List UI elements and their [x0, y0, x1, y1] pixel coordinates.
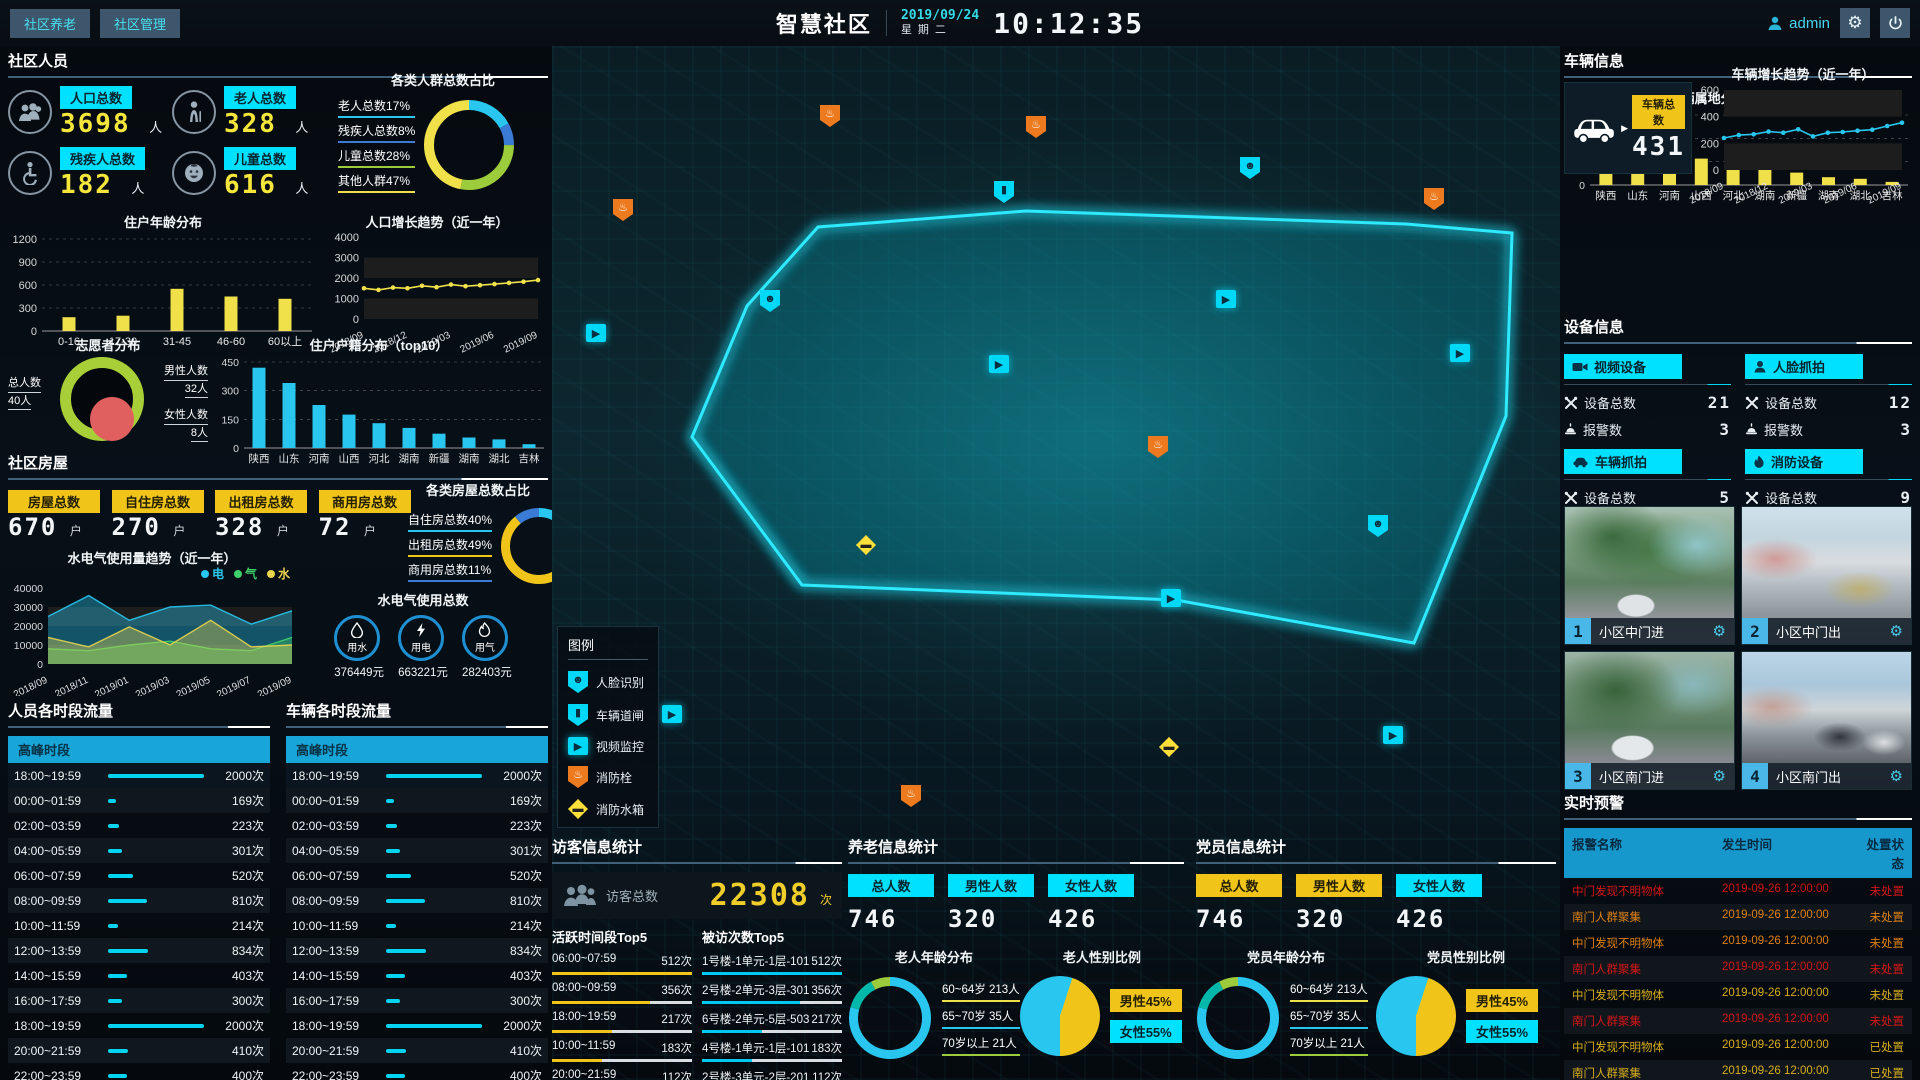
flow-row: 20:00~21:59 410次	[286, 1038, 548, 1063]
svg-text:山东: 山东	[1627, 189, 1648, 202]
flow-row: 22:00~23:59 400次	[286, 1063, 548, 1080]
usage-item: 用水 376449元	[334, 615, 384, 680]
stat-value: 72	[319, 513, 352, 541]
video-monitor-marker[interactable]: ▶	[1216, 290, 1236, 308]
stat-label: 女性人数	[1048, 874, 1134, 897]
population-growth-block: 人口增长趋势（近一年） 010002000300040002018/092018…	[326, 212, 548, 353]
alerts-table-header: 报警名称 发生时间 处置状态	[1564, 828, 1912, 878]
device-name-badge: 视频设备	[1564, 354, 1682, 379]
alert-status: 未处置	[1862, 909, 1904, 925]
flow-row: 18:00~19:59 2000次	[8, 763, 270, 788]
svg-text:300: 300	[19, 303, 37, 315]
top5-value: 512次	[661, 953, 692, 969]
flow-count: 834次	[212, 942, 264, 959]
panel-title: 养老信息统计	[848, 836, 1184, 857]
app-title: 智慧社区	[776, 7, 872, 39]
svg-text:600: 600	[19, 280, 37, 292]
stat-value: 670	[8, 513, 57, 541]
camera-grid: 1 小区中门进 ⚙ 2 小区中门出 ⚙ 3 小区南门进 ⚙ 4 小区南门出 ⚙	[1564, 506, 1912, 790]
panel-visitor-stats: 访客信息统计 访客总数 22308 次 活跃时间段Top5 06:00~07:5…	[552, 836, 842, 1080]
device-alarm-row: 报警数 3	[1564, 419, 1731, 439]
party-age-block: 党员年龄分布 60~64岁 213人65~70岁 35人70岁以上 21人	[1196, 947, 1376, 1060]
top5-value: 356次	[661, 982, 692, 998]
stat-unit: 人	[295, 181, 308, 196]
nav-button-0[interactable]: 社区养老	[10, 9, 90, 38]
flow-count: 810次	[490, 892, 542, 909]
svg-text:0: 0	[37, 659, 43, 671]
elder-age-block: 老人年龄分布 60~64岁 213人65~70岁 35人70岁以上 21人	[848, 947, 1020, 1060]
utility-trend-block: 水电气使用量趋势（近一年） 电气水 0100002000030000400002…	[8, 548, 296, 696]
top5-value: 217次	[811, 1011, 842, 1027]
vehicle-flow-table: 18:00~19:59 2000次 00:00~01:59 169次 02:00…	[286, 763, 548, 1080]
chart-title: 党员性别比例	[1376, 947, 1556, 966]
flow-count: 2000次	[490, 1017, 542, 1034]
camera-label-bar: 4 小区南门出 ⚙	[1742, 763, 1911, 789]
flow-row: 10:00~11:59 214次	[286, 913, 548, 938]
visitor-total-label: 访客总数	[606, 886, 700, 905]
alert-row[interactable]: 南门人群聚集 2019-09-26 12:00:00 已处置	[1564, 1060, 1912, 1080]
alert-time: 2019-09-26 12:00:00	[1722, 935, 1862, 951]
party-gender-block: 党员性别比例 男性45%女性55%	[1376, 947, 1556, 1060]
list-title: 活跃时间段Top5	[552, 927, 692, 946]
age-item: 65~70岁 35人	[1290, 1008, 1368, 1029]
top5-label: 2号楼-3单元-2层-201	[702, 1069, 809, 1080]
stat-label: 人口总数	[60, 86, 132, 109]
svg-text:400: 400	[1701, 112, 1719, 124]
panel-title: 社区人员	[8, 50, 548, 71]
water-icon	[350, 622, 364, 638]
flow-time: 04:00~05:59	[292, 844, 378, 858]
panel-rule	[286, 726, 548, 728]
flow-count: 400次	[212, 1067, 264, 1080]
alert-name: 南门人群聚集	[1572, 961, 1722, 977]
legend-item: 水	[267, 565, 290, 582]
alert-status: 未处置	[1862, 961, 1904, 977]
stat-value: 616	[224, 170, 277, 200]
svg-text:1000: 1000	[335, 294, 359, 306]
camera-name: 小区中门进	[1599, 622, 1705, 641]
svg-text:0: 0	[1579, 180, 1585, 192]
electric-icon	[415, 622, 427, 638]
flow-row: 18:00~19:59 2000次	[8, 1013, 270, 1038]
elder_age-svg	[848, 976, 932, 1060]
flow-count: 400次	[490, 1067, 542, 1080]
camera-tile-2[interactable]: 2 小区中门出 ⚙	[1741, 506, 1912, 645]
flow-time: 18:00~19:59	[14, 769, 100, 783]
elder-stats: 总人数 746 男性人数 320 女性人数 426	[848, 874, 1184, 933]
stat-value: 182	[60, 170, 113, 200]
vehicle-total-label: 车辆总数	[1632, 95, 1685, 129]
stat-value: 320	[1296, 905, 1382, 933]
stat-label: 男性人数	[948, 874, 1034, 897]
panel-rule	[8, 726, 270, 728]
top5-label: 6号楼-2单元-5层-503	[702, 1011, 809, 1027]
house-stats: 房屋总数 670 户 自住房总数 270 户 出租房总数 328 户 商用房总数…	[8, 490, 416, 541]
svg-text:2000: 2000	[335, 273, 359, 285]
flow-row: 02:00~03:59 223次	[286, 813, 548, 838]
column-header: 报警名称	[1572, 834, 1722, 872]
stat-label: 女性人数	[1396, 874, 1482, 897]
svg-text:0: 0	[1713, 165, 1719, 177]
svg-text:4000: 4000	[335, 232, 359, 244]
top5-row: 10:00~11:59 183次	[552, 1040, 692, 1062]
people-stat-0: 人口总数 3698 人	[8, 86, 166, 139]
user-name: admin	[1789, 15, 1830, 32]
top5-row: 06:00~07:59 512次	[552, 953, 692, 975]
column-header: 发生时间	[1722, 834, 1862, 872]
stat-label: 自住房总数	[112, 490, 204, 513]
party_age-svg	[1196, 976, 1280, 1060]
panel-title: 人员各时段流量	[8, 700, 270, 721]
chart-title: 老人性别比例	[1020, 947, 1184, 966]
stat-unit: 户	[70, 524, 82, 538]
alert-status: 未处置	[1862, 883, 1904, 899]
flow-count: 2000次	[490, 767, 542, 784]
user-account[interactable]: admin	[1767, 15, 1830, 32]
camera-settings-gear-icon[interactable]: ⚙	[1713, 622, 1726, 640]
device-total-label: 设备总数	[1584, 488, 1636, 507]
stat-label: 总人数	[848, 874, 934, 897]
top5-value: 217次	[661, 1011, 692, 1027]
population-icon	[8, 90, 52, 134]
svg-text:200: 200	[1701, 138, 1719, 150]
header-datetime: 2019/09/24 星期二	[901, 9, 979, 37]
alert-time: 2019-09-26 12:00:00	[1722, 1065, 1862, 1080]
svg-text:10000: 10000	[14, 640, 43, 652]
stat-value: 328	[215, 513, 264, 541]
panel-community-housing: 社区房屋 房屋总数 670 户 自住房总数 270 户 出租房总数 328 户 …	[8, 452, 548, 698]
flow-time: 18:00~19:59	[292, 769, 378, 783]
alert-status: 未处置	[1862, 1013, 1904, 1029]
svg-text:2018/11: 2018/11	[53, 675, 90, 696]
svg-text:1200: 1200	[13, 234, 37, 246]
flow-time: 12:00~13:59	[14, 944, 100, 958]
panel-title: 访客信息统计	[552, 836, 842, 857]
stat-unit: 户	[173, 524, 185, 538]
header-right: admin ⚙	[1767, 8, 1910, 38]
top5-label: 2号楼-2单元-3层-301	[702, 982, 809, 998]
flow-count: 169次	[212, 792, 264, 809]
svg-text:900: 900	[19, 257, 37, 269]
visitor-total-value: 22308	[710, 878, 810, 913]
peak-period-header: 高峰时段	[8, 736, 270, 763]
svg-text:陕西: 陕西	[1595, 189, 1616, 202]
flow-count: 300次	[490, 992, 542, 1009]
age-item: 70岁以上 21人	[1290, 1035, 1368, 1056]
elder-age-donut-chart	[848, 976, 932, 1060]
settings-button[interactable]: ⚙	[1840, 8, 1870, 38]
flow-time: 04:00~05:59	[14, 844, 100, 858]
house-stat-2: 出租房总数 328 户	[215, 490, 313, 541]
fire-device-icon	[1753, 455, 1765, 469]
stat-label: 房屋总数	[8, 490, 100, 513]
house-ratio-block: 各类房屋总数占比 自住房总数40%出租房总数49%商用房总数11%	[408, 480, 548, 585]
usage-value: 282403元	[462, 664, 512, 680]
alert-row[interactable]: 南门人群聚集 2019-09-26 12:00:00 未处置	[1564, 956, 1912, 982]
utility-usage-items: 用水 376449元 用电 663221元 用气 282403元	[298, 615, 548, 680]
gear-icon: ⚙	[1847, 13, 1862, 33]
face-recognition-marker: ☻	[568, 671, 588, 693]
video-monitor-marker[interactable]: ▶	[662, 705, 682, 723]
column-header: 处置状态	[1862, 834, 1904, 872]
header-divider	[886, 10, 887, 36]
flow-row: 08:00~09:59 810次	[8, 888, 270, 913]
flow-time: 12:00~13:59	[292, 944, 378, 958]
top5-label: 08:00~09:59	[552, 982, 616, 998]
header: 社区养老社区管理 智慧社区 2019/09/24 星期二 10:12:35 ad…	[0, 0, 1920, 46]
legend-item-video[interactable]: ▶ 视频监控	[568, 737, 648, 755]
camera-settings-gear-icon[interactable]: ⚙	[1713, 767, 1726, 785]
flow-count: 223次	[212, 817, 264, 834]
alert-row[interactable]: 南门人群聚集 2019-09-26 12:00:00 未处置	[1564, 1008, 1912, 1034]
alert-row[interactable]: 中门发现不明物体 2019-09-26 12:00:00 未处置	[1564, 982, 1912, 1008]
census-top10-bar-chart: 0150300450陕西山东河南山西河北湖南新疆湖南湖北吉林	[210, 354, 548, 466]
map-legend: 图例 ☻ 人脸识别 ▮ 车辆道闸 ▶ 视频监控 ♨ 消防栓 ▬ 消防水箱	[557, 626, 659, 828]
top5-row: 20:00~21:59 112次	[552, 1069, 692, 1080]
party-stats: 总人数 746 男性人数 320 女性人数 426	[1196, 874, 1556, 933]
stat-value: 746	[1196, 905, 1282, 933]
alert-row[interactable]: 中门发现不明物体 2019-09-26 12:00:00 未处置	[1564, 878, 1912, 904]
svg-text:2019/09: 2019/09	[256, 675, 294, 696]
svg-text:2018/09: 2018/09	[12, 675, 50, 696]
flow-count: 214次	[212, 917, 264, 934]
flow-row: 08:00~09:59 810次	[286, 888, 548, 913]
camera-tile-1[interactable]: 1 小区中门进 ⚙	[1564, 506, 1735, 645]
volunteer-female: 女性人数8人	[150, 407, 208, 442]
ratio-label: 出租房总数49%	[408, 536, 492, 557]
wrench-icon	[1745, 491, 1759, 505]
house-stat-1: 自住房总数 270 户	[112, 490, 210, 541]
chart-title: 水电气使用总数	[298, 590, 548, 609]
alert-name: 中门发现不明物体	[1572, 1039, 1722, 1055]
camera-label-bar: 2 小区中门出 ⚙	[1742, 618, 1911, 644]
usage-label: 用电	[411, 639, 431, 654]
wrench-icon	[1564, 491, 1578, 505]
flow-count: 410次	[212, 1042, 264, 1059]
panel-rule	[848, 862, 1184, 864]
camera-label-bar: 3 小区南门进 ⚙	[1565, 763, 1734, 789]
camera-settings-gear-icon[interactable]: ⚙	[1890, 767, 1903, 785]
chart-title: 党员年龄分布	[1196, 947, 1376, 966]
panel-community-people: 社区人员 人口总数 3698 人 老人总数 328 人 残疾人总数 182 人	[8, 50, 548, 448]
device-card-视频设备: 视频设备 设备总数 21 报警数 3	[1564, 354, 1731, 439]
alert-row[interactable]: 南门人群聚集 2019-09-26 12:00:00 未处置	[1564, 904, 1912, 930]
flow-row: 18:00~19:59 2000次	[286, 763, 548, 788]
camera-name: 小区中门出	[1776, 622, 1882, 641]
flow-time: 00:00~01:59	[14, 794, 100, 808]
flow-row: 12:00~13:59 834次	[8, 938, 270, 963]
crowd-ratio-donut-chart	[423, 99, 515, 191]
legend-item-tank[interactable]: ▬ 消防水箱	[568, 799, 648, 819]
legend-item: 电	[201, 565, 224, 582]
party-age-donut-chart	[1196, 976, 1280, 1060]
stat-label: 出租房总数	[215, 490, 307, 513]
top5-value: 112次	[662, 1069, 692, 1080]
flow-row: 22:00~23:59 400次	[8, 1063, 270, 1080]
alert-name: 南门人群聚集	[1572, 1065, 1722, 1080]
device-total-row: 设备总数 21	[1564, 392, 1731, 412]
flow-count: 301次	[212, 842, 264, 859]
camera-number: 3	[1565, 763, 1591, 789]
stat-label: 儿童总数	[224, 147, 296, 170]
gender-badge: 男性45%	[1466, 989, 1538, 1012]
flow-count: 403次	[212, 967, 264, 984]
ratio-label: 残疾人总数8%	[338, 122, 415, 143]
legend-item-gate[interactable]: ▮ 车辆道闸	[568, 704, 648, 726]
top5-row: 2号楼-2单元-3层-301 356次	[702, 982, 842, 1004]
device-total-label: 设备总数	[1584, 393, 1636, 412]
panel-vehicle-flow: 车辆各时段流量 高峰时段 18:00~19:59 2000次 00:00~01:…	[286, 700, 548, 1074]
arrow-icon: ▶	[1621, 123, 1628, 134]
top5-label: 06:00~07:59	[552, 953, 616, 969]
alert-name: 中门发现不明物体	[1572, 935, 1722, 951]
top5-value: 356次	[811, 982, 842, 998]
video-monitor-marker[interactable]: ▶	[989, 355, 1009, 373]
house-stat-0: 房屋总数 670 户	[8, 490, 106, 541]
flow-row: 06:00~07:59 520次	[286, 863, 548, 888]
usage-value: 376449元	[334, 664, 384, 680]
flow-count: 300次	[212, 992, 264, 1009]
gas-icon	[478, 622, 491, 638]
flow-time: 16:00~17:59	[14, 994, 100, 1008]
video-monitor-marker[interactable]: ▶	[1383, 726, 1403, 744]
elder-gender-pie-chart	[1020, 976, 1100, 1056]
vehicle-capture-icon	[1572, 456, 1589, 468]
ratio-label: 自住房总数40%	[408, 511, 492, 532]
flow-time: 08:00~09:59	[292, 894, 378, 908]
chart-title: 车辆增长趋势（近一年）	[1694, 64, 1912, 83]
video-monitor-marker[interactable]: ▶	[1450, 344, 1470, 362]
panel-party-stats: 党员信息统计 总人数 746 男性人数 320 女性人数 426 党员年龄分布 …	[1196, 836, 1556, 1080]
people-flow-table: 18:00~19:59 2000次 00:00~01:59 169次 02:00…	[8, 763, 270, 1080]
chart-title: 住户年龄分布	[8, 212, 318, 231]
legend-item-hydrant[interactable]: ♨ 消防栓	[568, 766, 648, 788]
active-period-top5: 活跃时间段Top5 06:00~07:59 512次 08:00~09:59 3…	[552, 927, 692, 1080]
top5-label: 20:00~21:59	[552, 1069, 616, 1080]
panel-device-info: 设备信息 视频设备 设备总数 21 报警数 3 人脸抓拍 设备总数 12 报警数	[1564, 316, 1912, 502]
power-button[interactable]	[1880, 8, 1910, 38]
svg-text:2019/01: 2019/01	[93, 675, 131, 696]
svg-text:30000: 30000	[14, 602, 43, 614]
flow-count: 223次	[490, 817, 542, 834]
census_top10-svg: 0150300450陕西山东河南山西河北湖南新疆湖南湖北吉林	[210, 354, 548, 466]
age-item: 60~64岁 213人	[1290, 981, 1368, 1002]
party-stat: 女性人数 426	[1396, 874, 1482, 933]
panel-title: 车辆各时段流量	[286, 700, 548, 721]
flow-count: 520次	[490, 867, 542, 884]
flow-row: 20:00~21:59 410次	[8, 1038, 270, 1063]
flow-time: 22:00~23:59	[292, 1069, 378, 1080]
flow-time: 08:00~09:59	[14, 894, 100, 908]
age-item: 70岁以上 21人	[942, 1035, 1020, 1056]
flow-row: 14:00~15:59 403次	[286, 963, 548, 988]
panel-elder-stats: 养老信息统计 总人数 746 男性人数 320 女性人数 426 老人年龄分布 …	[848, 836, 1184, 1080]
alert-row[interactable]: 中门发现不明物体 2019-09-26 12:00:00 未处置	[1564, 930, 1912, 956]
stat-value: 270	[112, 513, 161, 541]
stat-label: 残疾人总数	[60, 147, 145, 170]
fire-tank-marker: ▬	[568, 799, 588, 819]
elder-stat: 男性人数 320	[948, 874, 1034, 933]
elder-gender-block: 老人性别比例 男性45%女性55%	[1020, 947, 1184, 1060]
device-total-row: 设备总数 9	[1745, 487, 1912, 507]
panel-title: 设备信息	[1564, 316, 1912, 337]
flow-count: 301次	[490, 842, 542, 859]
alert-name: 南门人群聚集	[1572, 1013, 1722, 1029]
top5-value: 512次	[811, 953, 842, 969]
flow-row: 12:00~13:59 834次	[286, 938, 548, 963]
camera-settings-gear-icon[interactable]: ⚙	[1890, 622, 1903, 640]
camera-tile-4[interactable]: 4 小区南门出 ⚙	[1741, 651, 1912, 790]
flow-count: 2000次	[212, 767, 264, 784]
device-total-row: 设备总数 5	[1564, 487, 1731, 507]
alert-status: 未处置	[1862, 987, 1904, 1003]
svg-text:2019/05: 2019/05	[175, 675, 213, 696]
alert-row[interactable]: 中门发现不明物体 2019-09-26 12:00:00 已处置	[1564, 1034, 1912, 1060]
alert-status: 已处置	[1862, 1039, 1904, 1055]
header-weekday: 星期二	[901, 24, 979, 37]
utility-trend-area-chart: 0100002000030000400002018/092018/112019/…	[8, 584, 296, 696]
stat-value: 3698	[60, 109, 131, 139]
flow-count: 810次	[212, 892, 264, 909]
crowd-ratio-block: 各类人群总数占比 老人总数17%残疾人总数8%儿童总数28%其他人群47%	[338, 70, 548, 193]
crowd_ratio-svg	[423, 99, 515, 191]
stat-value: 328	[224, 109, 277, 139]
resident-age-block: 住户年龄分布 030060090012000-1617-3031-4546-60…	[8, 212, 318, 349]
legend-item-face[interactable]: ☻ 人脸识别	[568, 671, 648, 693]
svg-text:2018/09: 2018/09	[1688, 181, 1726, 204]
alert-time: 2019-09-26 12:00:00	[1722, 961, 1862, 977]
panel-rule	[552, 862, 842, 864]
flow-row: 04:00~05:59 301次	[8, 838, 270, 863]
svg-text:3000: 3000	[335, 253, 359, 265]
flow-row: 18:00~19:59 2000次	[286, 1013, 548, 1038]
chart-title: 老人年龄分布	[848, 947, 1020, 966]
flow-time: 10:00~11:59	[292, 919, 378, 933]
flow-time: 14:00~15:59	[14, 969, 100, 983]
usage-item: 用气 282403元	[462, 615, 512, 680]
flow-time: 06:00~07:59	[292, 869, 378, 883]
flow-row: 14:00~15:59 403次	[8, 963, 270, 988]
flow-time: 20:00~21:59	[14, 1044, 100, 1058]
camera-number: 4	[1742, 763, 1768, 789]
camera-tile-3[interactable]: 3 小区南门进 ⚙	[1564, 651, 1735, 790]
census-block: 住户户籍分布（top10） 0150300450陕西山东河南山西河北湖南新疆湖南…	[210, 335, 548, 466]
volunteer-male: 男性人数32人	[150, 363, 208, 398]
device-card-人脸抓拍: 人脸抓拍 设备总数 12 报警数 3	[1745, 354, 1912, 439]
video-monitor-marker: ▶	[568, 737, 588, 755]
top5-row: 18:00~19:59 217次	[552, 1011, 692, 1033]
flow-time: 00:00~01:59	[292, 794, 378, 808]
list-title: 被访次数Top5	[702, 927, 842, 946]
people-stat-3: 儿童总数 616 人	[172, 147, 330, 200]
alert-name: 南门人群聚集	[1572, 909, 1722, 925]
resident_age-svg: 030060090012000-1617-3031-4546-6060以上	[8, 231, 316, 349]
flow-time: 20:00~21:59	[292, 1044, 378, 1058]
top5-value: 183次	[811, 1040, 842, 1056]
people-stats: 人口总数 3698 人 老人总数 328 人 残疾人总数 182 人 儿童总数 …	[8, 86, 330, 200]
usage-value: 663221元	[398, 664, 448, 680]
top5-row: 2号楼-3单元-2层-201 112次	[702, 1069, 842, 1080]
chart-title: 人口增长趋势（近一年）	[326, 212, 548, 231]
video-monitor-marker[interactable]: ▶	[586, 324, 606, 342]
nav-button-1[interactable]: 社区管理	[100, 9, 180, 38]
flow-row: 10:00~11:59 214次	[8, 913, 270, 938]
video-monitor-marker[interactable]: ▶	[1161, 589, 1181, 607]
flow-time: 06:00~07:59	[14, 869, 100, 883]
flow-time: 22:00~23:59	[14, 1069, 100, 1080]
top5-value: 112次	[812, 1069, 842, 1080]
flow-row: 16:00~17:59 300次	[8, 988, 270, 1013]
